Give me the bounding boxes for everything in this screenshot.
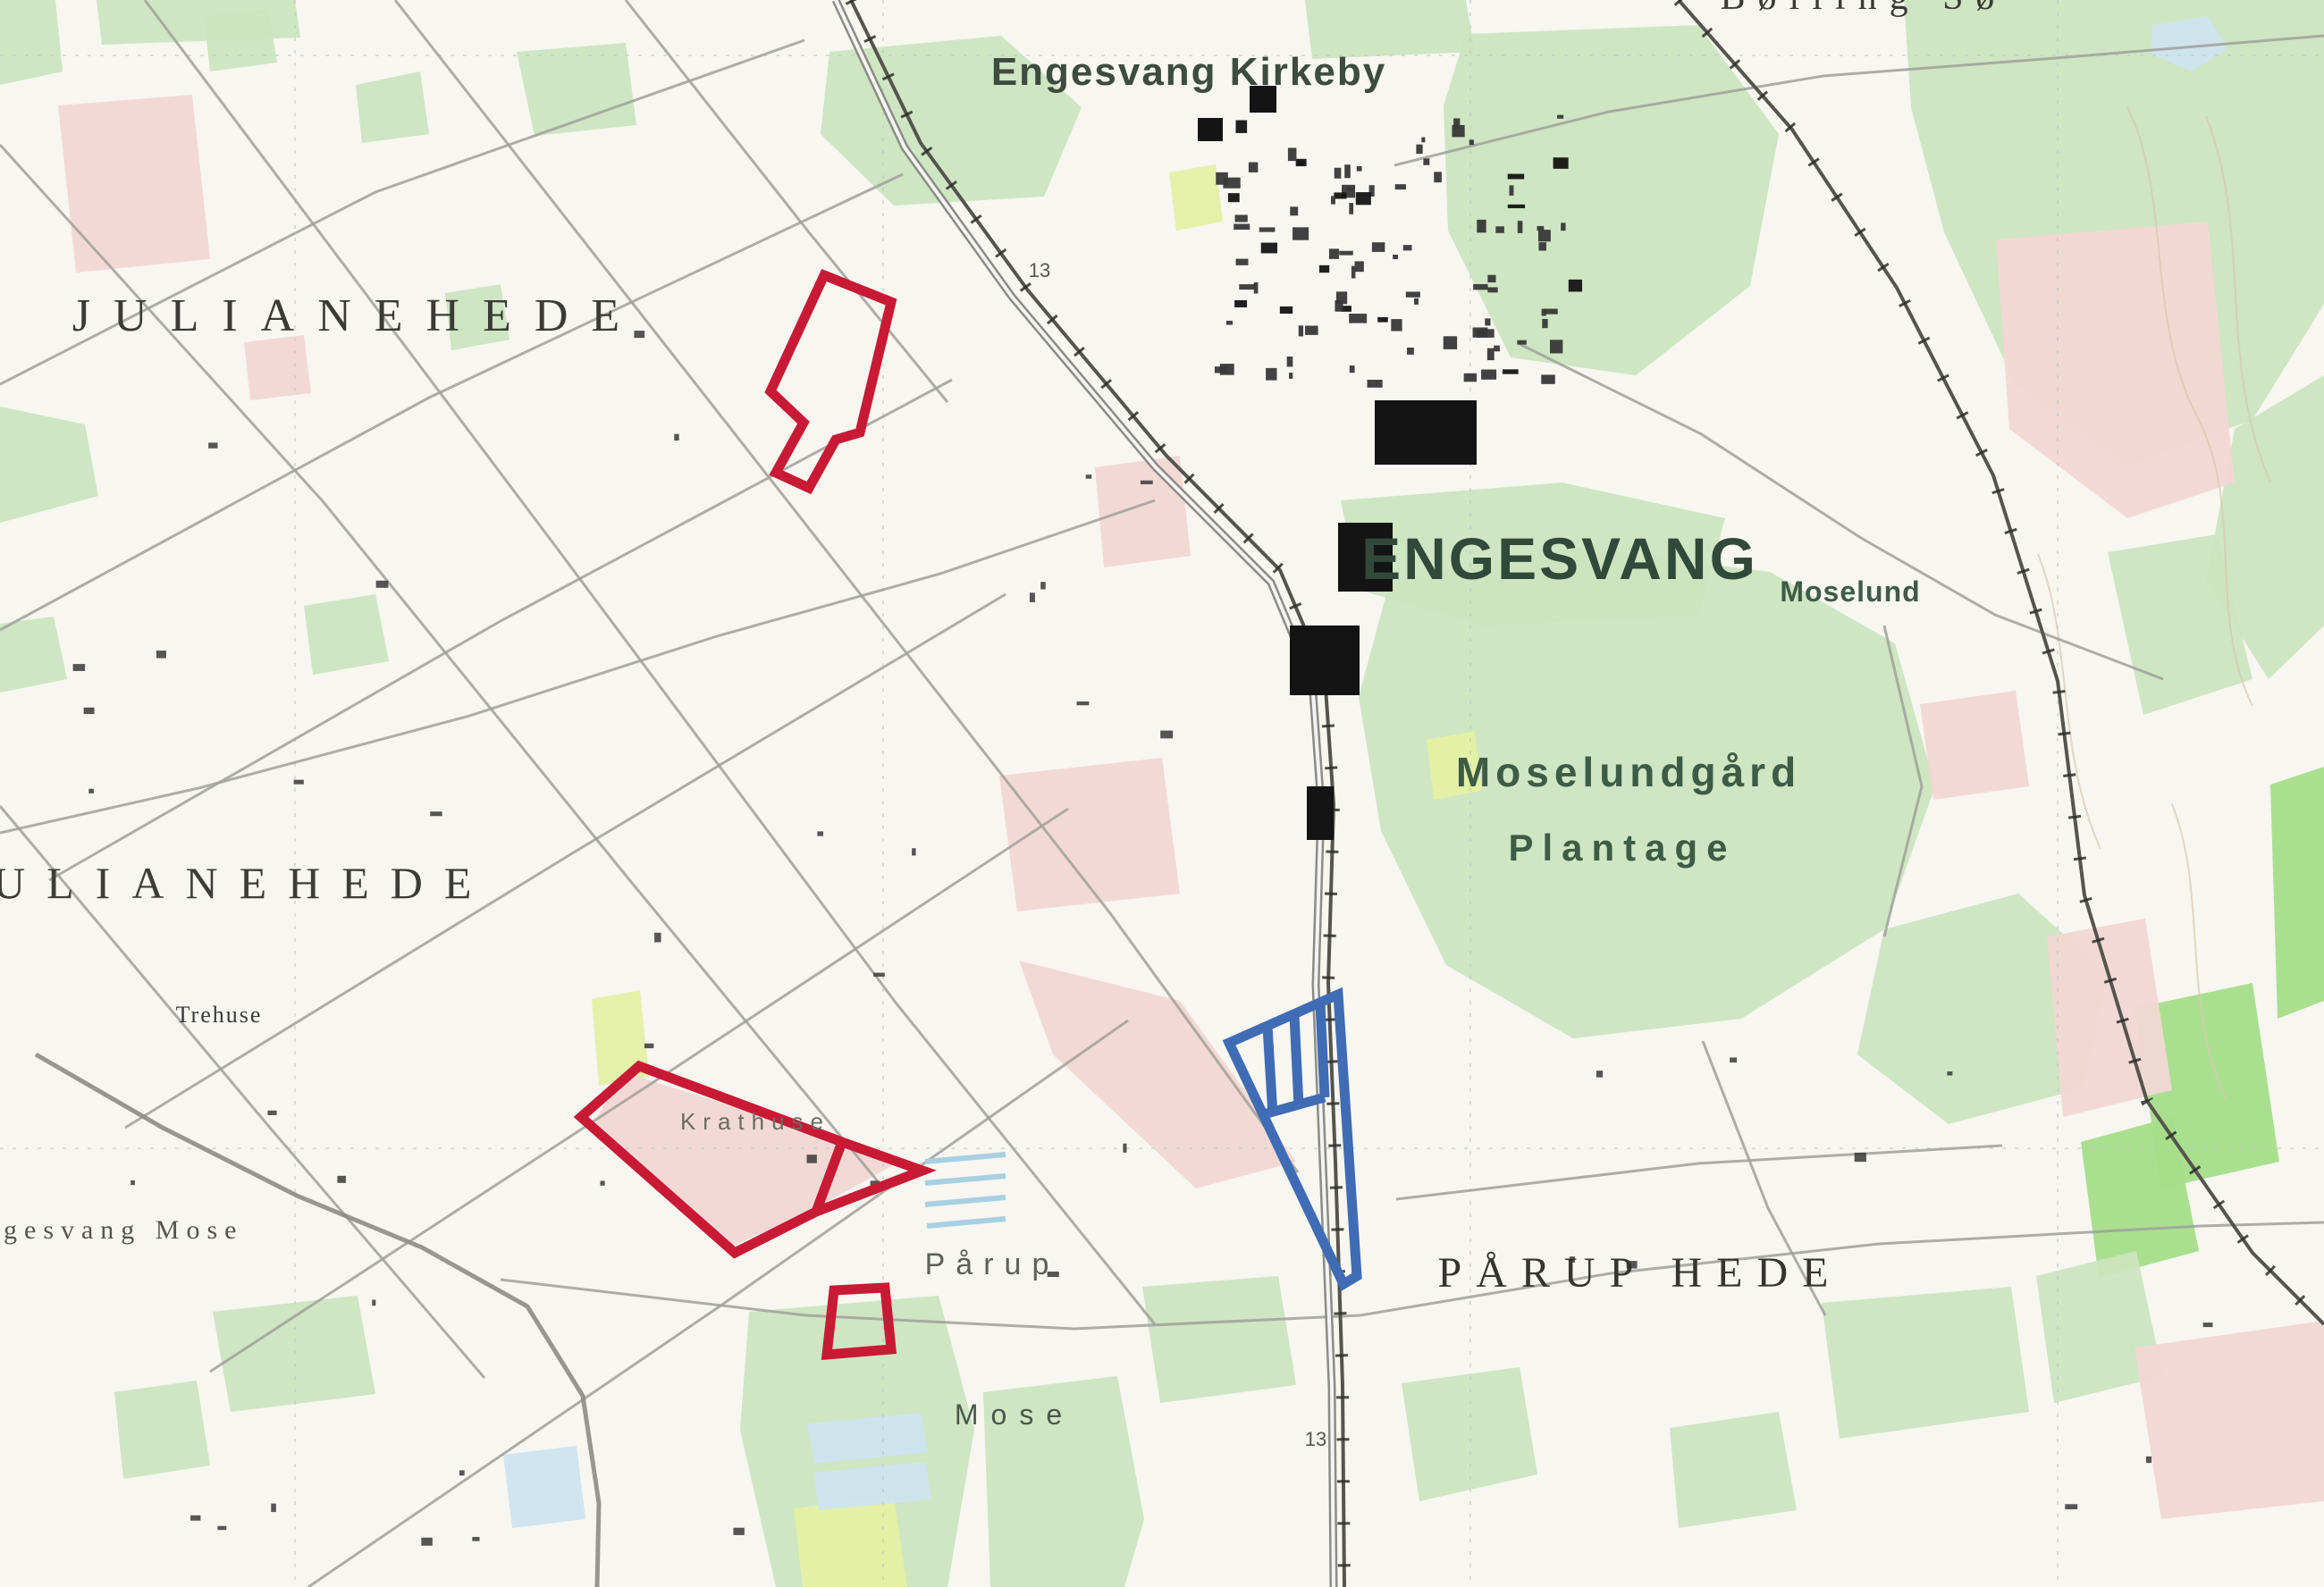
building-marker — [873, 973, 885, 977]
building-marker — [1299, 325, 1303, 336]
building-marker — [1357, 166, 1362, 172]
building-marker — [1510, 185, 1514, 195]
building-marker — [1141, 481, 1153, 484]
building-marker — [1503, 369, 1519, 374]
building-marker — [1280, 306, 1293, 314]
building-marker — [1261, 243, 1277, 254]
terrain-patch-green — [1822, 1287, 2029, 1439]
building-marker — [1234, 224, 1250, 231]
building-marker — [1296, 159, 1307, 166]
map-label-paarup-hede: PÅRUP HEDE — [1438, 1249, 1843, 1297]
building-marker — [294, 780, 304, 785]
building-marker — [1339, 251, 1352, 256]
map-label-engesvang-mose: gesvang Mose — [4, 1215, 243, 1245]
terrain-patch-green_bright — [2270, 767, 2324, 1019]
building-marker — [1407, 348, 1414, 355]
map-label-moselund: Moselund — [1780, 575, 1920, 608]
building-marker — [1542, 309, 1546, 316]
terrain-patch-pink — [1095, 456, 1191, 567]
building-marker — [1473, 284, 1487, 290]
building-marker — [1287, 357, 1293, 366]
building-marker — [1030, 592, 1035, 602]
building-marker — [1235, 214, 1248, 222]
building-marker — [1288, 147, 1297, 161]
building-marker — [1289, 373, 1293, 379]
building-block — [1290, 626, 1360, 695]
building-marker — [1403, 245, 1412, 250]
building-marker — [1040, 582, 1046, 589]
building-marker — [1331, 196, 1335, 204]
building-marker — [1355, 261, 1364, 272]
building-marker — [1421, 138, 1425, 143]
terrain-patch-green — [114, 1381, 210, 1479]
building-marker — [1226, 321, 1233, 325]
terrain-patch-pink — [244, 335, 311, 400]
map-label-mose: Mose — [955, 1398, 1074, 1431]
blue-inner-divider-2 — [1294, 1015, 1299, 1106]
building-marker — [1487, 275, 1495, 282]
building-marker — [1239, 284, 1256, 290]
building-marker — [1305, 326, 1318, 335]
terrain-patch-pink — [2135, 1321, 2324, 1519]
building-marker — [1368, 380, 1383, 388]
building-marker — [1473, 327, 1488, 337]
building-marker — [1485, 318, 1490, 325]
building-marker — [1569, 280, 1582, 292]
building-marker — [1235, 121, 1247, 133]
map-label-route-13-south: 13 — [1305, 1428, 1326, 1450]
building-marker — [271, 1504, 276, 1512]
building-marker — [1855, 1153, 1866, 1162]
building-marker — [1335, 168, 1342, 179]
building-marker — [674, 434, 678, 441]
building-marker — [1228, 193, 1240, 202]
building-marker — [1487, 287, 1497, 292]
building-marker — [1444, 336, 1457, 349]
building-marker — [1557, 115, 1563, 119]
building-marker — [1391, 319, 1402, 331]
terrain-patch-water — [503, 1446, 585, 1528]
building-marker — [1086, 474, 1092, 479]
terrain-patch-green — [97, 0, 300, 45]
map-label-engesvang: ENGESVANG — [1361, 525, 1758, 592]
building-marker — [1517, 340, 1526, 345]
map-label-plantage: Plantage — [1508, 827, 1736, 869]
building-marker — [1538, 230, 1551, 241]
building-marker — [654, 933, 661, 943]
building-marker — [1477, 220, 1486, 233]
building-marker — [1160, 731, 1173, 739]
building-marker — [376, 581, 389, 588]
building-marker — [1481, 370, 1496, 380]
building-marker — [1550, 340, 1562, 353]
building-marker — [1406, 291, 1420, 297]
building-marker — [1356, 192, 1371, 205]
map-label-trehuse: Trehuse — [176, 1002, 263, 1028]
building-marker — [1377, 317, 1388, 323]
building-marker — [1596, 1071, 1603, 1078]
building-marker — [73, 664, 85, 671]
building-marker — [156, 651, 166, 658]
building-marker — [1434, 172, 1442, 182]
building-marker — [1395, 184, 1406, 189]
building-marker — [459, 1470, 465, 1475]
building-marker — [1293, 227, 1309, 239]
building-marker — [88, 789, 94, 793]
building-marker — [733, 1528, 744, 1535]
building-marker — [1508, 174, 1524, 180]
building-marker — [1464, 374, 1477, 382]
building-marker — [1249, 163, 1258, 172]
building-marker — [807, 1155, 817, 1163]
map-label-boelling-soe: Bølling Sø — [1721, 0, 2008, 18]
map-label-moselundgaard: Moselundgård — [1456, 749, 1801, 795]
building-marker — [817, 831, 823, 835]
building-marker — [1259, 227, 1276, 231]
building-marker — [1730, 1057, 1737, 1062]
building-marker — [2065, 1504, 2077, 1509]
building-marker — [1349, 314, 1367, 323]
building-block — [1375, 400, 1477, 465]
map-label-julianehede-north: JULIANEHEDE — [72, 290, 643, 341]
building-marker — [337, 1176, 346, 1183]
building-marker — [84, 708, 95, 714]
building-marker — [1518, 221, 1523, 233]
building-marker — [1334, 192, 1346, 198]
map-label-paarup: Pårup — [925, 1247, 1060, 1281]
building-marker — [421, 1538, 432, 1546]
building-marker — [131, 1180, 135, 1185]
building-marker — [1076, 701, 1089, 705]
building-marker — [1290, 206, 1298, 215]
building-block — [1198, 118, 1223, 141]
building-marker — [217, 1526, 226, 1530]
building-marker — [1947, 1071, 1952, 1075]
building-marker — [1416, 145, 1422, 155]
terrain-patch-lime — [794, 1496, 907, 1587]
building-marker — [601, 1180, 605, 1185]
map-label-julianehede-west: JULIANEHEDE — [0, 858, 493, 908]
terrain-patch-pink — [58, 95, 210, 273]
building-marker — [1350, 365, 1355, 373]
building-marker — [2146, 1457, 2151, 1463]
building-marker — [268, 1111, 277, 1115]
terrain-patch-green — [1142, 1276, 1296, 1403]
building-marker — [1538, 242, 1546, 250]
building-marker — [1329, 248, 1339, 258]
topographic-map: Engesvang KirkebyJULIANEHEDEJULIANEHEDEE… — [0, 0, 2324, 1587]
building-marker — [1319, 265, 1329, 273]
building-marker — [1372, 242, 1385, 252]
building-marker — [1561, 223, 1565, 231]
blue-inner-divider-3 — [1320, 1003, 1325, 1097]
building-marker — [1423, 158, 1429, 164]
building-marker — [912, 848, 915, 855]
building-marker — [1554, 157, 1569, 169]
map-label-krathuse: Krathuse — [680, 1108, 830, 1135]
building-marker — [1494, 346, 1500, 352]
building-marker — [1335, 300, 1343, 312]
building-marker — [1254, 282, 1259, 294]
terrain-patch-lime — [1169, 164, 1223, 231]
map-label-engesvang-kirkeby: Engesvang Kirkeby — [991, 50, 1386, 94]
terrain-patch-green — [304, 594, 389, 675]
building-marker — [1487, 348, 1495, 360]
building-marker — [1495, 226, 1504, 232]
building-marker — [1234, 300, 1247, 307]
building-marker — [372, 1299, 375, 1306]
building-marker — [1452, 125, 1464, 137]
building-marker — [1508, 205, 1525, 208]
building-marker — [1542, 319, 1547, 328]
map-canvas: Engesvang KirkebyJULIANEHEDEJULIANEHEDEE… — [0, 0, 2324, 1587]
building-marker — [1223, 178, 1240, 189]
building-marker — [208, 442, 217, 448]
building-marker — [1393, 255, 1398, 259]
building-marker — [1545, 309, 1558, 315]
building-block — [1307, 786, 1334, 840]
building-marker — [1344, 164, 1351, 178]
terrain-patch-pink — [1920, 691, 2029, 800]
building-marker — [1541, 374, 1555, 383]
building-marker — [1469, 139, 1474, 145]
blue-inner-divider-1 — [1267, 1027, 1273, 1115]
terrain-patch-green — [0, 0, 63, 85]
building-marker — [1215, 366, 1227, 373]
building-marker — [190, 1516, 200, 1521]
building-marker — [1349, 203, 1353, 214]
building-marker — [1123, 1144, 1126, 1153]
terrain-patch-green — [1670, 1412, 1797, 1528]
building-marker — [1414, 298, 1419, 305]
building-marker — [430, 811, 442, 816]
building-marker — [2203, 1322, 2213, 1327]
building-marker — [644, 1044, 653, 1048]
building-marker — [1266, 368, 1276, 381]
building-marker — [1236, 259, 1249, 265]
building-marker — [472, 1537, 479, 1541]
map-label-route-13-north: 13 — [1029, 259, 1050, 281]
